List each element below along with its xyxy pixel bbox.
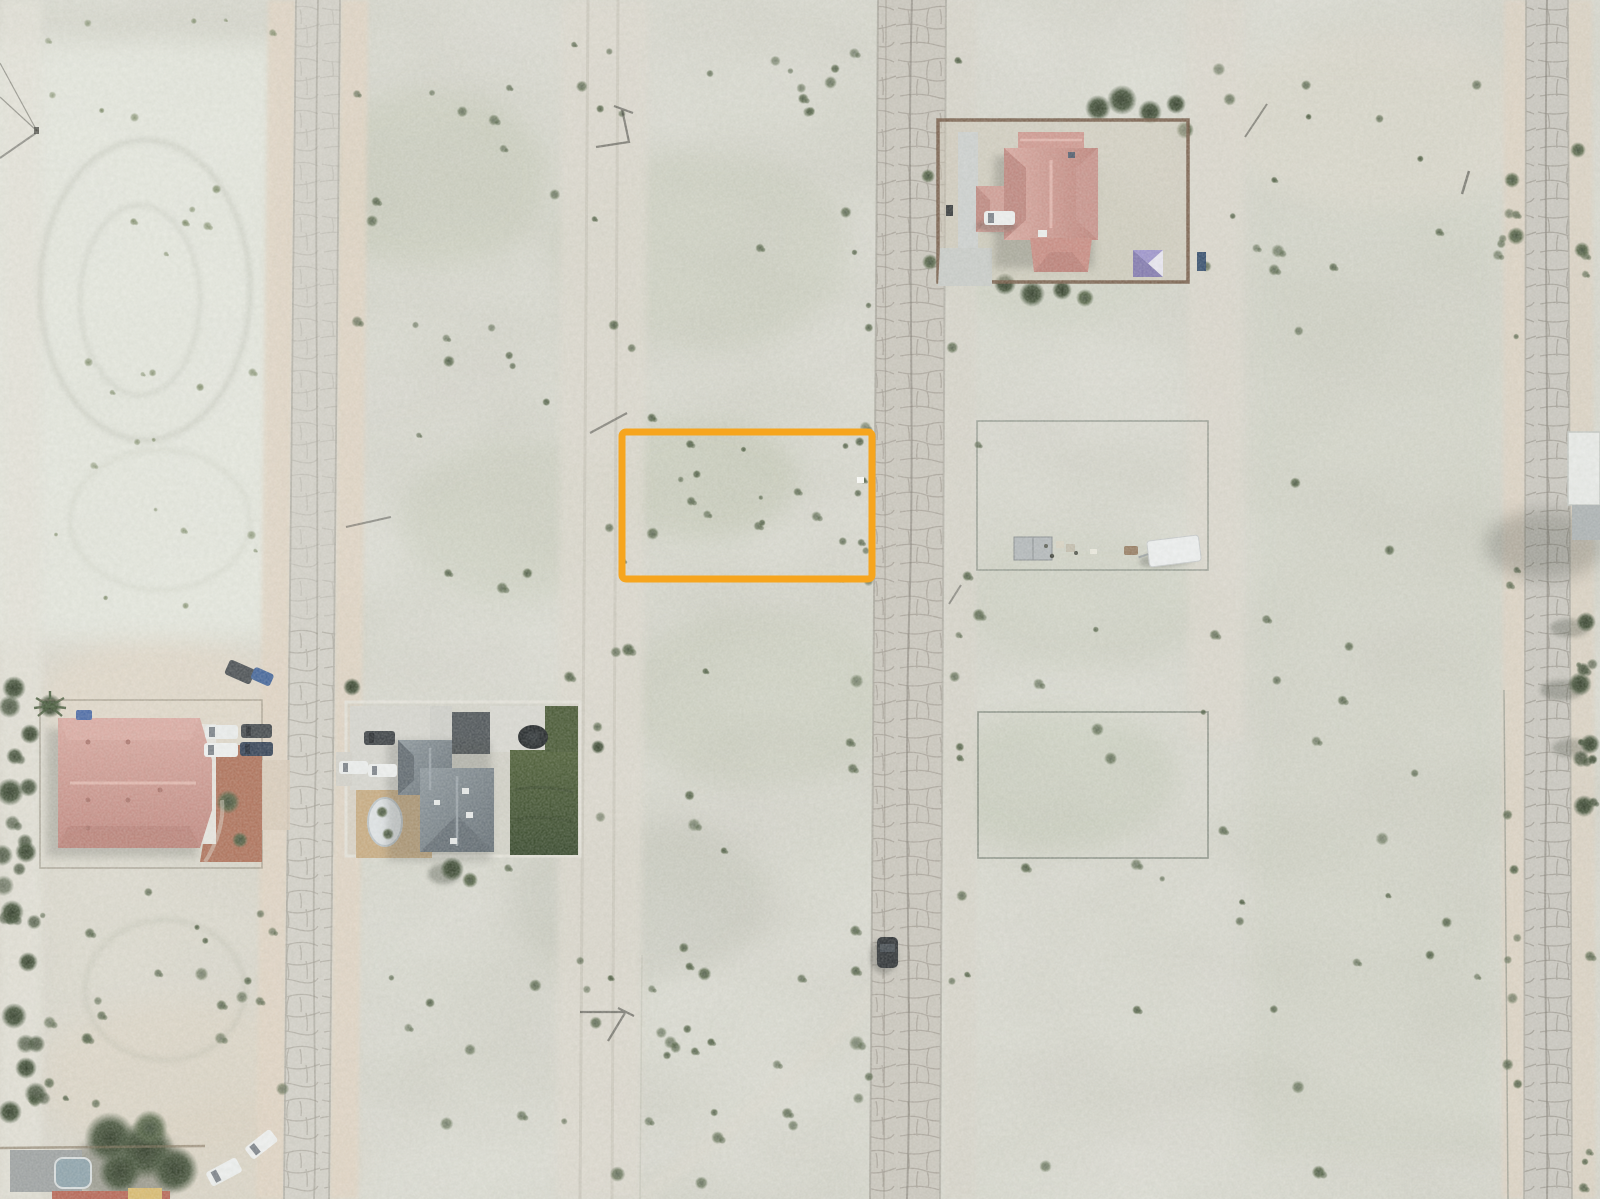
aerial-photo bbox=[0, 0, 1600, 1199]
photo-grain-dark bbox=[0, 0, 1600, 1199]
aerial-scene bbox=[0, 0, 1600, 1199]
